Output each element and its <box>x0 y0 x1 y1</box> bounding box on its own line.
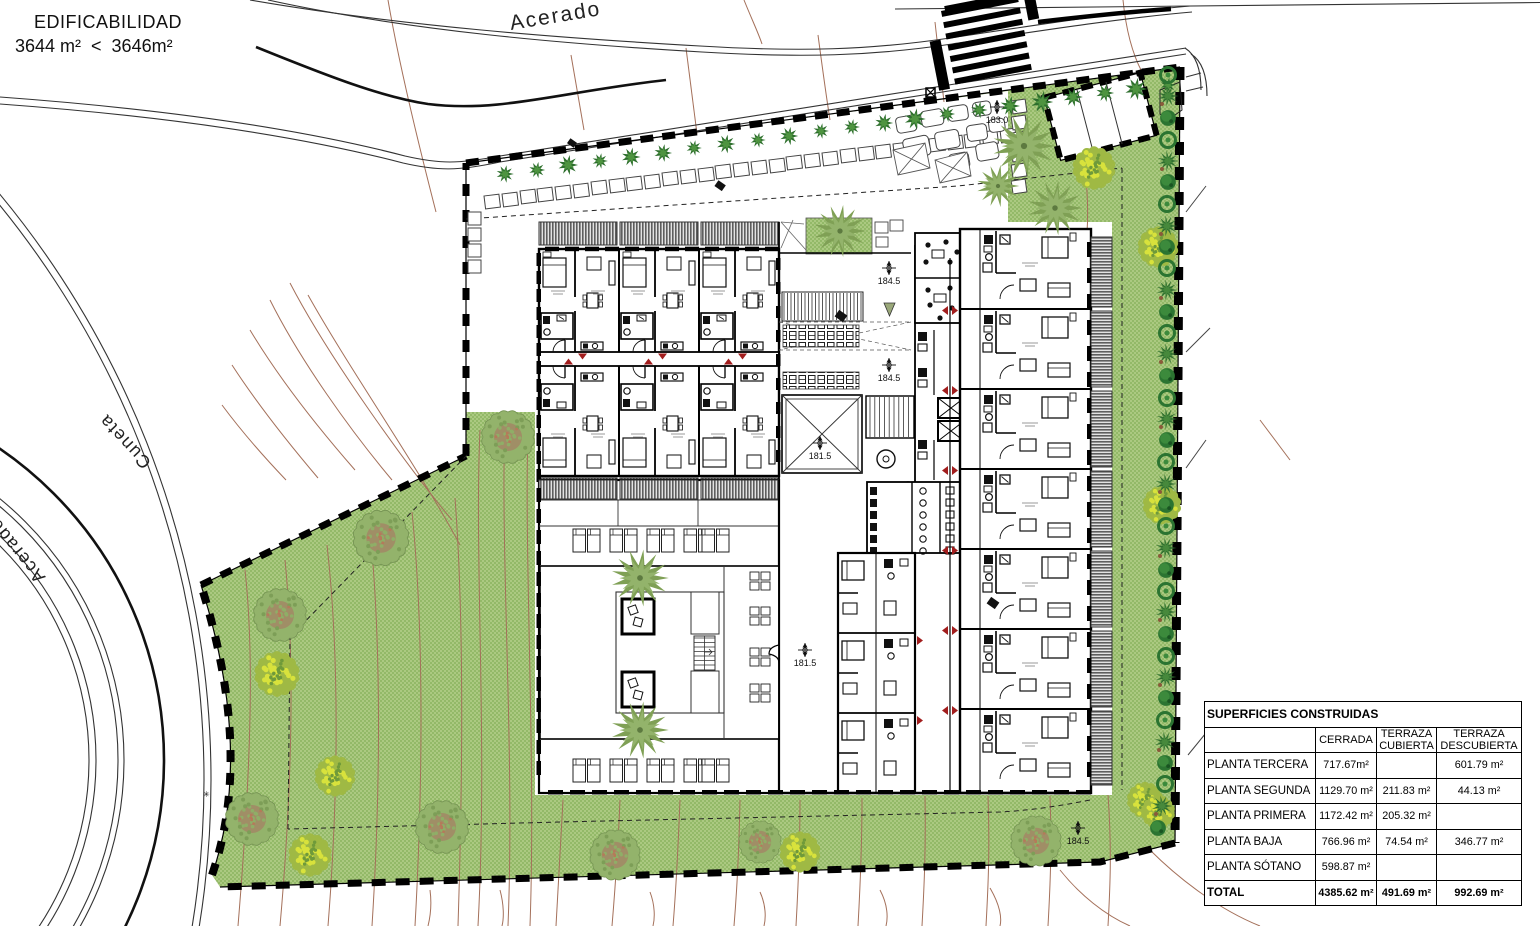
svg-text:184.5: 184.5 <box>1067 836 1090 846</box>
svg-text:183.0: 183.0 <box>986 115 1009 125</box>
svg-text:181.5: 181.5 <box>794 658 817 668</box>
svg-text:Acerado: Acerado <box>0 514 49 587</box>
svg-text:184.5: 184.5 <box>878 373 901 383</box>
svg-text:184.5: 184.5 <box>878 276 901 286</box>
svg-text:✳: ✳ <box>203 790 210 799</box>
svg-text:Acerado: Acerado <box>508 0 603 35</box>
svg-text:181.5: 181.5 <box>809 451 832 461</box>
